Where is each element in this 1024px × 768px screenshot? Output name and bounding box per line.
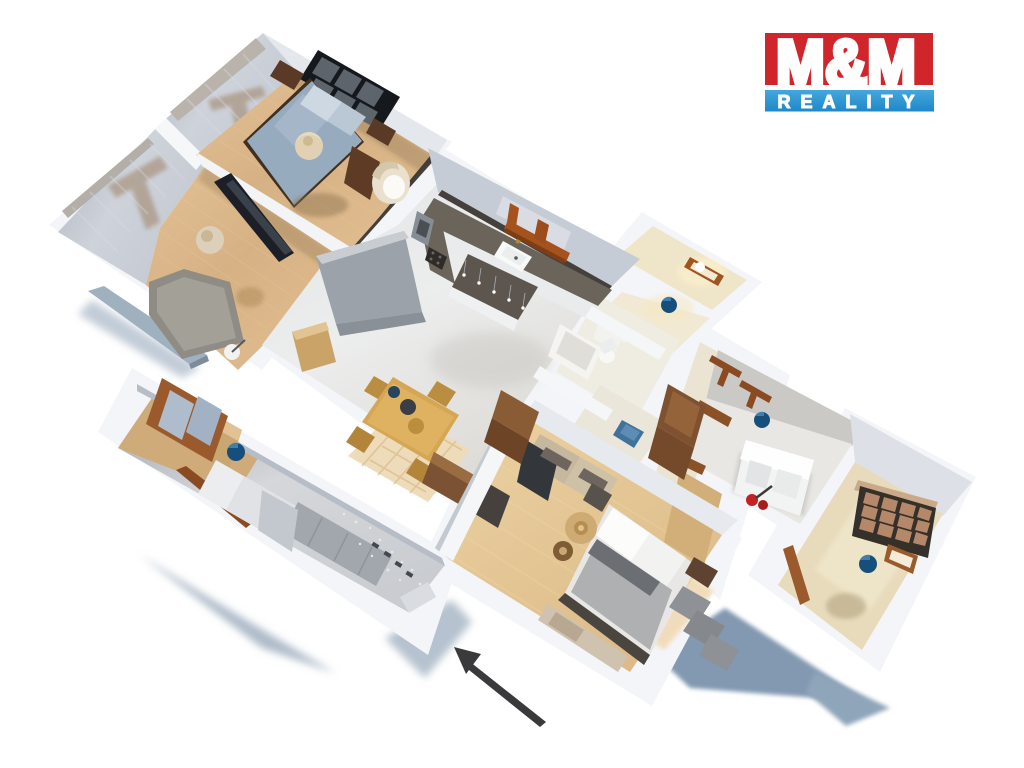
svg-text:M&M: M&M [776, 26, 916, 100]
svg-text:REALITY: REALITY [777, 92, 924, 112]
